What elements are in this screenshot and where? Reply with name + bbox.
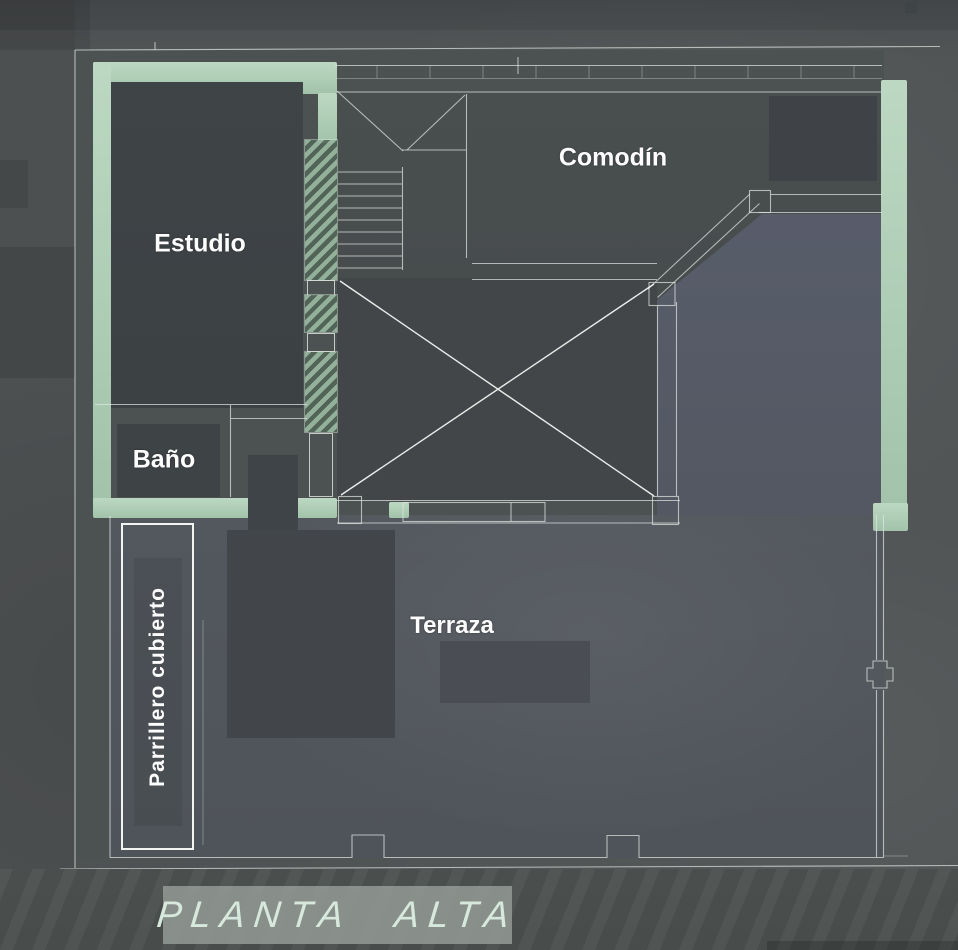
room-label-parrillero: Parrillero cubierto [146,587,170,787]
room-label-terraza: Terraza [410,612,494,640]
plan-title-banner: PLANTA ALTA [163,886,512,944]
parrillero-annotation-box: Parrillero cubierto [121,523,194,850]
photo-artifact-bottomright [767,941,958,950]
room-label-comodin: Comodín [559,144,667,173]
room-label-bano: Baño [133,446,196,475]
room-label-estudio: Estudio [154,230,246,259]
plan-title: PLANTA ALTA [155,894,520,936]
floorplan-photo: Estudio Baño Comodín Terraza Parrillero … [0,0,958,950]
